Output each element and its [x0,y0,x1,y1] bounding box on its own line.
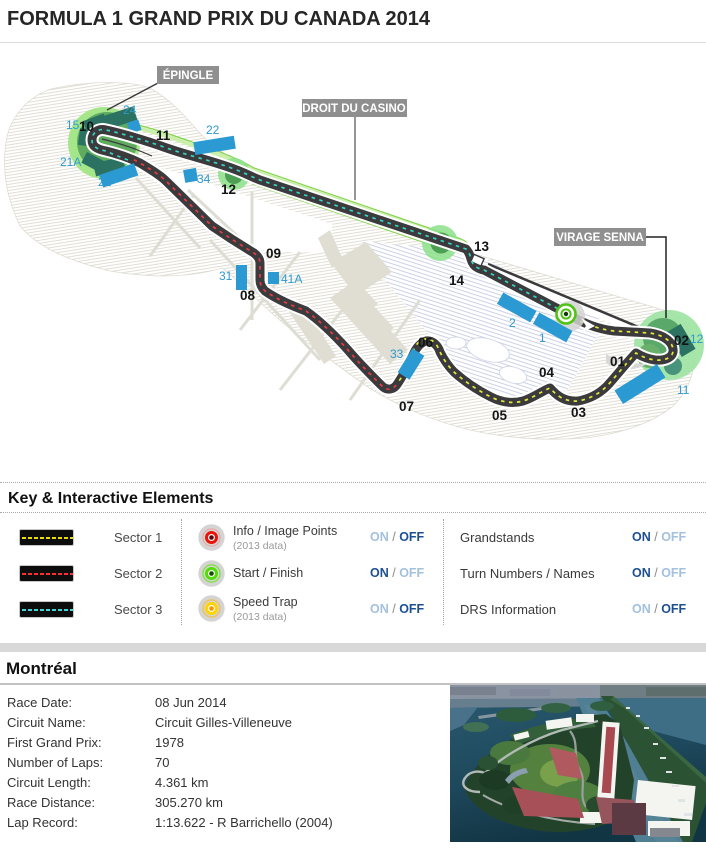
svg-text:ÉPINGLE: ÉPINGLE [163,69,214,82]
svg-text:14: 14 [449,273,465,288]
svg-text:11: 11 [677,383,690,397]
svg-text:04: 04 [539,365,555,380]
svg-text:33: 33 [390,347,404,361]
svg-text:24: 24 [123,103,137,117]
svg-text:02: 02 [674,333,689,348]
svg-text:DROIT DU CASINO: DROIT DU CASINO [302,103,406,115]
svg-text:12: 12 [221,182,236,197]
svg-text:15: 15 [66,118,80,132]
svg-text:31: 31 [219,269,233,283]
svg-text:22: 22 [206,123,220,137]
svg-text:07: 07 [399,399,414,414]
svg-text:10: 10 [79,119,94,134]
svg-text:06: 06 [418,335,434,350]
svg-text:1: 1 [539,331,546,345]
svg-text:12: 12 [690,332,704,346]
svg-text:2: 2 [509,316,516,330]
svg-text:09: 09 [266,246,281,261]
svg-text:03: 03 [571,405,587,420]
svg-text:34: 34 [197,172,211,186]
svg-text:41A: 41A [281,272,302,286]
svg-text:11: 11 [156,128,171,143]
svg-text:13: 13 [474,239,490,254]
svg-text:08: 08 [240,288,256,303]
svg-text:01: 01 [610,354,626,369]
svg-text:21: 21 [98,175,112,189]
svg-text:21A: 21A [60,155,81,169]
svg-text:05: 05 [492,408,508,423]
svg-text:VIRAGE SENNA: VIRAGE SENNA [556,232,644,244]
